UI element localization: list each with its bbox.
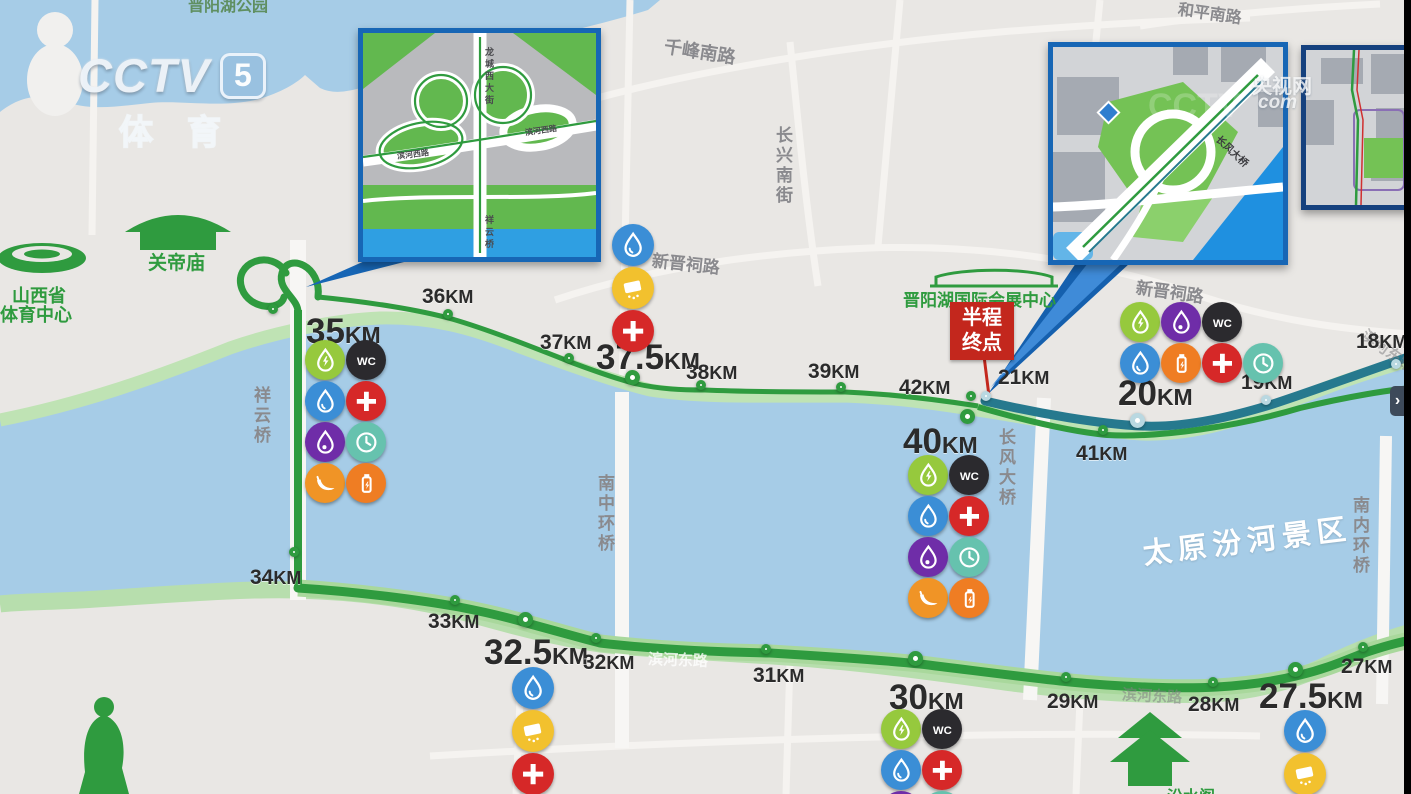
inset-left-art	[363, 33, 596, 257]
spray-station-icon	[1161, 302, 1201, 342]
broadcast-map-frame: 晋阳湖公园 关帝庙 山西省 体育中心 晋阳湖国际会展中心 汾水阁 太原汾河景区 …	[0, 0, 1411, 794]
aid-station-30KM: WC	[881, 709, 963, 794]
aid-row	[881, 750, 963, 791]
aid-row	[1284, 710, 1327, 753]
spray-station-icon	[305, 422, 345, 462]
aid-row: WC	[305, 340, 387, 381]
medical-station-icon	[1202, 343, 1242, 383]
cctv5-logo: CCTV 5 体育	[78, 48, 266, 154]
watermark-domain: com	[1258, 92, 1297, 114]
aid-row	[908, 496, 990, 537]
aid-row	[612, 310, 655, 353]
drink-station-icon	[305, 340, 345, 380]
channel-5-badge: 5	[220, 53, 266, 99]
aid-station-40KM: WC	[908, 455, 990, 619]
banana-station-icon	[908, 578, 948, 618]
gel-station-icon	[949, 578, 989, 618]
sponge-station-icon	[612, 267, 654, 309]
medical-station-icon	[922, 750, 962, 790]
sponge-station-icon	[1284, 753, 1326, 794]
gel-station-icon	[346, 463, 386, 503]
gel-station-icon	[1161, 343, 1201, 383]
aid-row	[305, 381, 387, 422]
svg-text:WC: WC	[1213, 318, 1232, 330]
toilet-station-icon: WC	[1202, 302, 1242, 342]
medical-station-icon	[346, 381, 386, 421]
spray-station-icon	[908, 537, 948, 577]
water-station-icon	[908, 496, 948, 536]
clock-station-icon	[1243, 343, 1283, 383]
svg-text:WC: WC	[933, 725, 952, 737]
drink-station-icon	[1120, 302, 1160, 342]
water-station-icon	[1120, 343, 1160, 383]
drink-station-icon	[908, 455, 948, 495]
aid-row	[612, 267, 655, 310]
medical-station-icon	[949, 496, 989, 536]
aid-row: WC	[908, 455, 990, 496]
aid-row	[1284, 753, 1327, 794]
svg-text:WC: WC	[960, 471, 979, 483]
clock-station-icon	[346, 422, 386, 462]
aid-station-32.5KM	[512, 667, 555, 794]
inset-city-blocks	[1301, 45, 1411, 210]
toilet-station-icon: WC	[922, 709, 962, 749]
inset-left-road-main: 龙城西大街	[483, 47, 496, 107]
sponge-station-icon	[512, 710, 554, 752]
aid-row	[908, 578, 990, 619]
aid-station-35KM: WC	[305, 340, 387, 504]
drink-station-icon	[881, 709, 921, 749]
inset-left-bridge: 祥云桥	[483, 215, 496, 251]
cctv-logo-text: CCTV	[78, 48, 210, 103]
aid-row	[512, 753, 555, 794]
water-station-icon	[512, 667, 554, 709]
toilet-station-icon: WC	[949, 455, 989, 495]
water-station-icon	[881, 750, 921, 790]
screen-edge-bar	[1404, 0, 1411, 794]
inset-xiangyun-interchange: 龙城西大街 滨河西路 滨河西路 祥云桥	[358, 28, 601, 262]
water-station-icon	[1284, 710, 1326, 752]
aid-row	[305, 422, 387, 463]
banana-station-icon	[305, 463, 345, 503]
aid-row	[512, 667, 555, 710]
inset-right-art: CCTV	[1053, 47, 1283, 260]
inset-edge-art	[1306, 50, 1406, 205]
aid-station-20KM: WC	[1120, 302, 1284, 384]
aid-row: WC	[881, 709, 963, 750]
toilet-station-icon: WC	[346, 340, 386, 380]
aid-station-27.5KM	[1284, 710, 1327, 794]
medical-station-icon	[512, 753, 554, 794]
aid-row	[908, 537, 990, 578]
aid-row: WC	[1120, 302, 1284, 343]
water-station-icon	[612, 224, 654, 266]
svg-text:CCTV: CCTV	[1148, 87, 1241, 125]
aid-station-37.5KM	[612, 224, 655, 353]
medical-station-icon	[612, 310, 654, 352]
water-station-icon	[305, 381, 345, 421]
svg-text:WC: WC	[357, 356, 376, 368]
clock-station-icon	[949, 537, 989, 577]
aid-row	[305, 463, 387, 504]
aid-row	[612, 224, 655, 267]
pan-right-tab[interactable]: ›	[1390, 386, 1405, 416]
aid-row	[512, 710, 555, 753]
chevron-right-icon: ›	[1395, 392, 1400, 410]
cctv-sports-text: 体育	[78, 105, 266, 154]
aid-row	[1120, 343, 1284, 384]
